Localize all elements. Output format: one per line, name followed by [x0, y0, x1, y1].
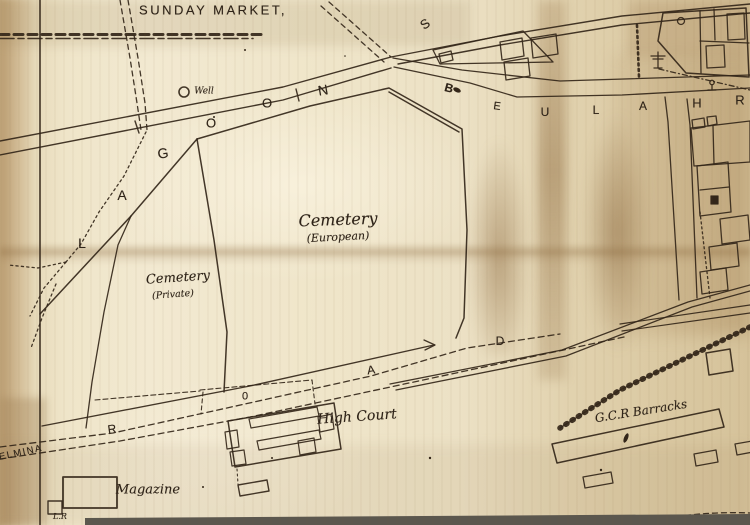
label-cemetery-european: Cemetery: [298, 211, 377, 230]
label-beulah-e: E: [493, 101, 502, 113]
fence-marks-row: [637, 25, 639, 77]
label-road-r: R: [107, 422, 117, 435]
label-lr: L.R: [53, 513, 67, 521]
label-lagoon-g: G: [157, 145, 170, 160]
label-beulah-r: R: [735, 94, 744, 107]
label-lagoon-o2: O: [262, 97, 272, 110]
private-cemetery-line: [86, 216, 131, 428]
label-cemetery-european-sub: (European): [306, 230, 369, 244]
label-sunday-market: SUNDAY MARKET,: [139, 4, 287, 17]
tree-icon: [651, 52, 665, 68]
small-structures: [583, 349, 750, 521]
map-canvas[interactable]: SUNDAY MARKET,WellLAGOONBEULAHRSCemetery…: [0, 0, 750, 525]
label-road-d: D: [496, 335, 505, 347]
label-well: Well: [194, 88, 214, 97]
label-lagoon-a: A: [117, 188, 126, 202]
label-beulah-u: U: [541, 106, 550, 118]
map-linework: [0, 0, 750, 525]
label-beulah-h: H: [692, 97, 701, 110]
label-magazine: Magazine: [116, 484, 180, 497]
label-road-a: A: [366, 364, 376, 377]
high-court-boundary-dashes: [95, 380, 315, 484]
right-buildings: [691, 116, 750, 294]
label-lagoon-o1: O: [206, 117, 216, 130]
label-beulah-a: A: [639, 100, 647, 112]
label-lagoon-l: L: [78, 236, 86, 250]
crossing-dashed-road: [321, 2, 391, 62]
well-icon: [179, 87, 189, 97]
magazine-building: [48, 477, 117, 514]
label-road-o: 0: [242, 392, 248, 403]
label-beulah-l: L: [593, 104, 600, 116]
bottom-edge-strip: [85, 514, 750, 525]
crossing-block: [433, 31, 553, 64]
block-dash-dot-boundary: [659, 69, 750, 90]
label-lagoon-n: N: [317, 82, 329, 98]
european-cemetery-outline: [131, 88, 467, 392]
dashed-path-road: [8, 0, 147, 348]
